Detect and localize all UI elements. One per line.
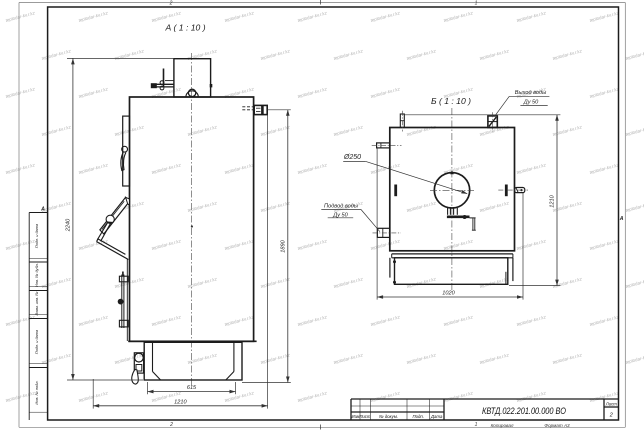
svg-text:2: 2 [169, 422, 173, 428]
svg-text:А ( 1 : 10 ): А ( 1 : 10 ) [164, 23, 205, 33]
svg-text:Лист: Лист [605, 401, 617, 406]
svg-text:2: 2 [609, 413, 613, 419]
svg-text:1020: 1020 [442, 291, 455, 297]
svg-text:А: А [619, 216, 624, 222]
svg-text:Подп. и дата: Подп. и дата [34, 329, 39, 354]
svg-text:Инв. № подл.: Инв. № подл. [34, 380, 39, 404]
svg-text:Дата: Дата [430, 414, 443, 419]
svg-text:1: 1 [475, 422, 478, 428]
svg-text:1210: 1210 [550, 194, 556, 207]
svg-text:А: А [40, 207, 45, 213]
svg-text:1210: 1210 [174, 399, 187, 405]
svg-text:Изм: Изм [352, 414, 360, 419]
svg-text:2240: 2240 [66, 218, 72, 232]
svg-text:1890: 1890 [280, 239, 286, 252]
svg-text:Подп. и дата: Подп. и дата [34, 223, 39, 248]
svg-text:Подп.: Подп. [412, 414, 423, 419]
svg-text:Подвод воды: Подвод воды [324, 204, 358, 210]
svg-text:Взам. инв. №: Взам. инв. № [34, 291, 39, 316]
svg-text:Лист: Лист [358, 414, 370, 419]
svg-text:Выход воды: Выход воды [515, 90, 546, 96]
svg-text:КВТД.022.201.00.000 ВО: КВТД.022.201.00.000 ВО [482, 406, 566, 416]
svg-text:Ø250: Ø250 [343, 154, 361, 161]
svg-text:Ду 50: Ду 50 [523, 100, 539, 106]
svg-text:Б ( 1 : 10 ): Б ( 1 : 10 ) [431, 96, 471, 106]
svg-text:615: 615 [187, 385, 197, 391]
svg-text:Инв. № дубл.: Инв. № дубл. [34, 263, 39, 287]
svg-text:2: 2 [169, 1, 173, 7]
svg-text:№ докум.: № докум. [379, 414, 398, 419]
svg-text:Формат А3: Формат А3 [544, 423, 570, 428]
svg-text:1: 1 [475, 1, 478, 7]
svg-text:Копировал: Копировал [491, 423, 514, 428]
